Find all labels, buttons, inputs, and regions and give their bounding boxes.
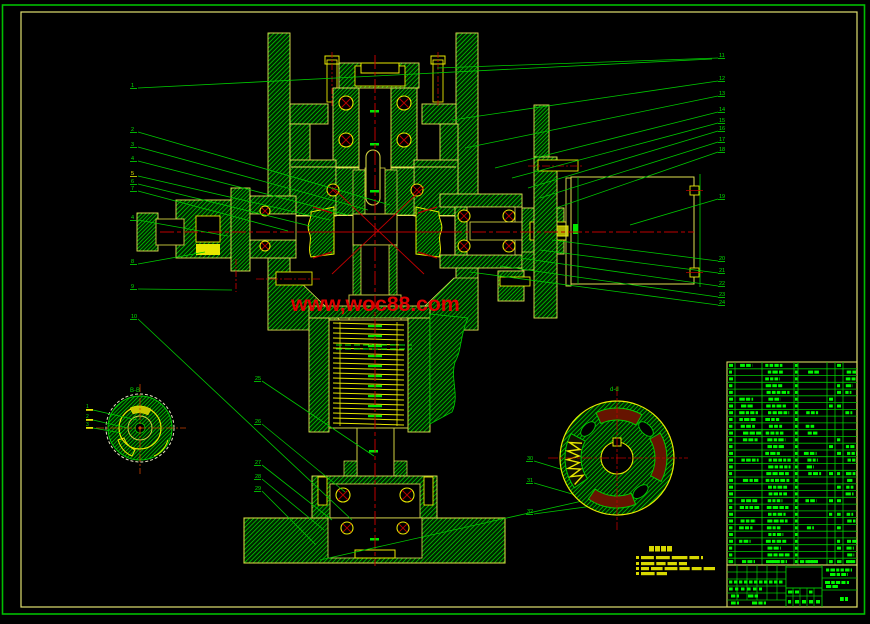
- svg-text:2: 2: [86, 414, 89, 420]
- svg-text:1: 1: [86, 404, 89, 410]
- svg-text:www,woc88.com: www,woc88.com: [290, 292, 460, 316]
- svg-text:B-B: B-B: [130, 388, 140, 394]
- svg-text:3: 3: [86, 422, 89, 428]
- svg-text:d-d: d-d: [610, 387, 619, 393]
